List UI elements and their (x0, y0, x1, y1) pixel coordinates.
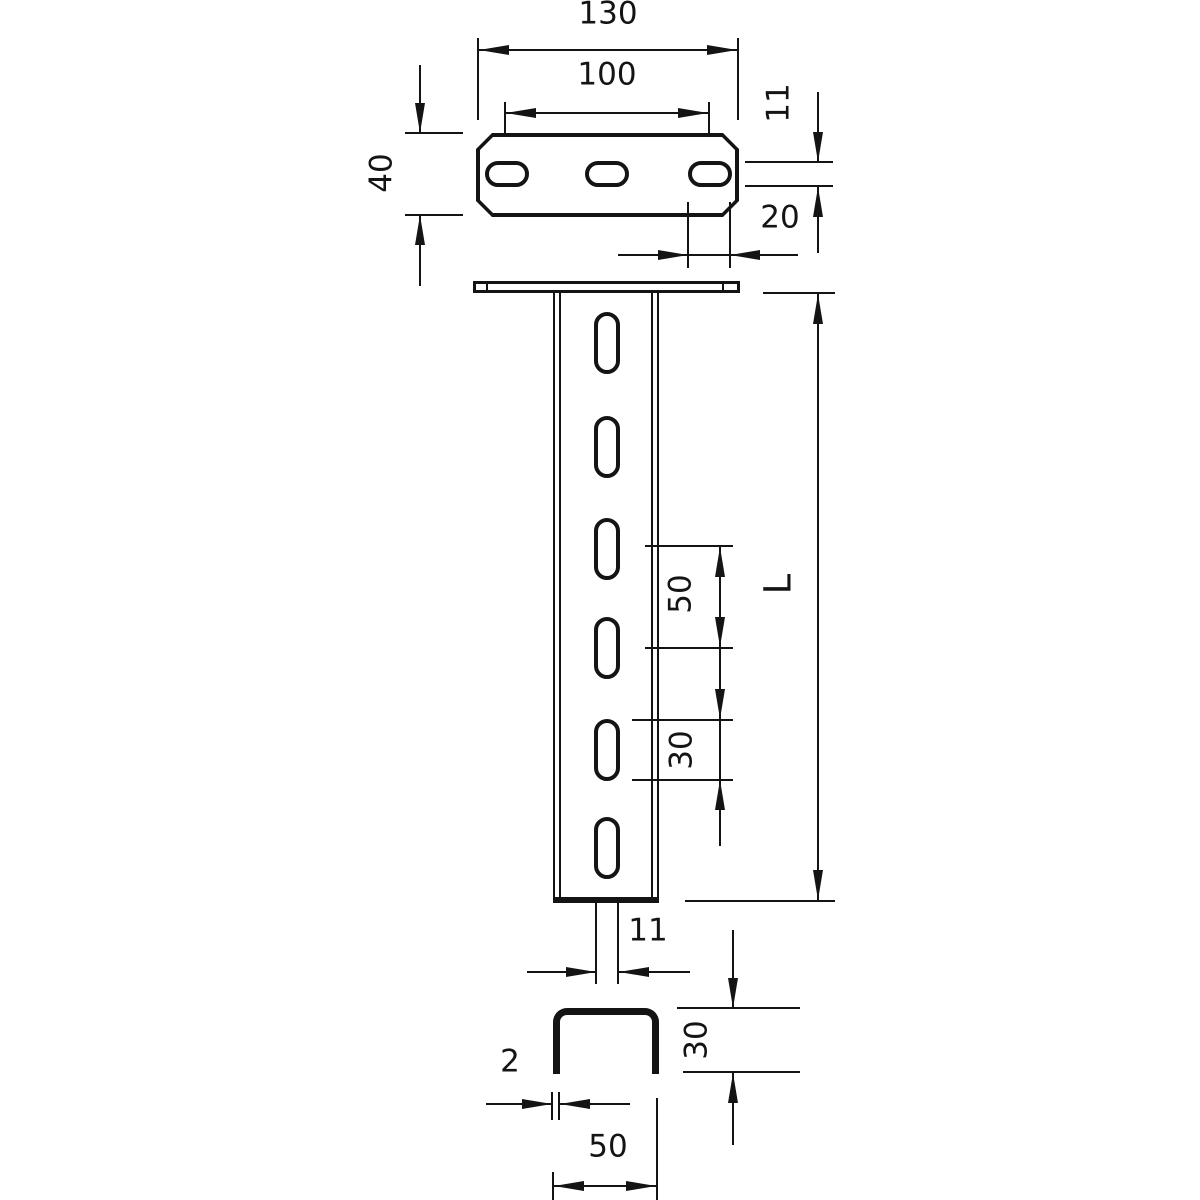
arrowhead (728, 1073, 738, 1103)
arrowhead (728, 978, 738, 1008)
dim-label-profile-width: 50 (588, 1132, 627, 1163)
u-profile-outline (553, 1008, 659, 1074)
arrowhead (554, 1181, 584, 1191)
arrowhead (560, 1099, 590, 1109)
arrowhead (626, 1181, 656, 1191)
technical-drawing: 130 100 40 11 20 (0, 0, 1200, 1200)
extension-line (683, 1071, 800, 1073)
extension-line (677, 1007, 800, 1009)
arrowhead (522, 1099, 552, 1109)
profile-section-view: 30 2 50 (0, 0, 1200, 1200)
dim-label-material-thickness: 2 (500, 1047, 520, 1078)
dim-label-profile-height: 30 (682, 1020, 713, 1059)
